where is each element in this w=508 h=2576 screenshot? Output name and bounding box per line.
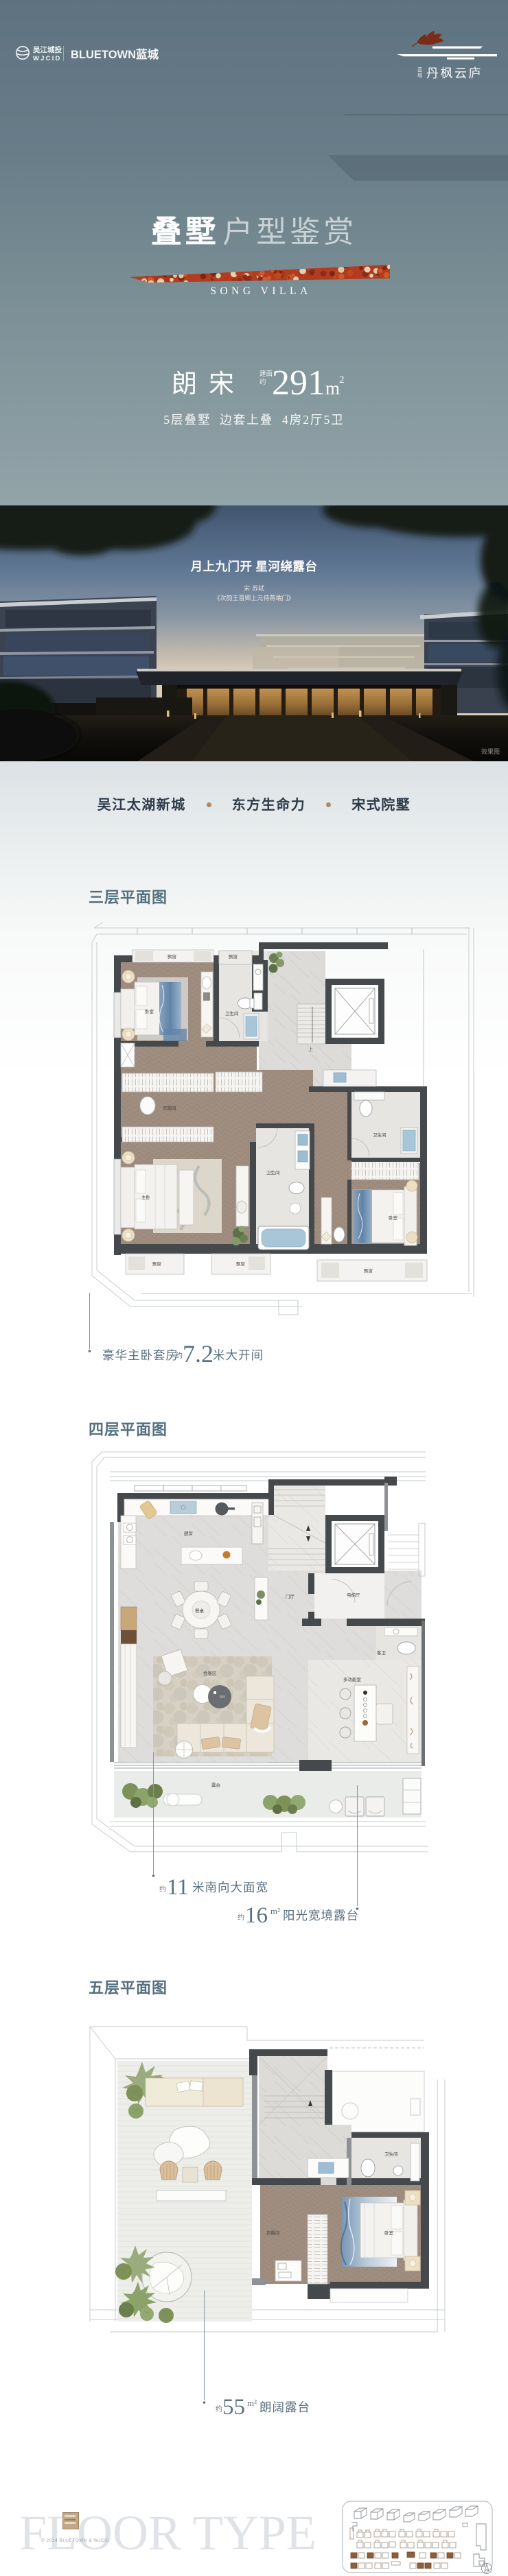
svg-text:约: 约 xyxy=(176,1351,183,1360)
svg-text:飘窗: 飘窗 xyxy=(152,1261,161,1267)
svg-text:多功能室: 多功能室 xyxy=(343,1676,362,1682)
svg-text:WJCID: WJCID xyxy=(33,55,62,62)
svg-text:豪华主卧套房: 豪华主卧套房 xyxy=(102,1348,178,1362)
svg-text:飘窗: 飘窗 xyxy=(236,1261,245,1267)
svg-text:291: 291 xyxy=(272,363,325,403)
svg-text:BLUETOWN蓝城: BLUETOWN蓝城 xyxy=(71,48,159,61)
svg-text:飘窗: 飘窗 xyxy=(168,953,176,959)
svg-text:米大开间: 米大开间 xyxy=(213,1348,264,1362)
svg-text:厨房: 厨房 xyxy=(184,1530,193,1536)
svg-text:效果图: 效果图 xyxy=(481,748,500,755)
svg-text:主卧: 主卧 xyxy=(141,1194,151,1200)
svg-text:门厅: 门厅 xyxy=(286,1593,295,1599)
svg-text:会客区: 会客区 xyxy=(203,1670,217,1676)
svg-text:m²: m² xyxy=(270,1906,280,1916)
svg-text:约: 约 xyxy=(259,378,266,386)
svg-text:卫生间: 卫生间 xyxy=(266,1169,280,1176)
svg-text:建面: 建面 xyxy=(259,370,273,378)
svg-text:丹枫云庐: 丹枫云庐 xyxy=(426,67,483,80)
svg-text:m²: m² xyxy=(247,2398,257,2408)
svg-text:2: 2 xyxy=(339,374,345,385)
svg-text:朗宋: 朗宋 xyxy=(172,370,246,398)
svg-text:11: 11 xyxy=(167,1875,189,1900)
svg-text:客卫: 客卫 xyxy=(377,1649,386,1656)
svg-text:宋·苏轼: 宋·苏轼 xyxy=(244,584,264,592)
svg-text:衣帽间: 衣帽间 xyxy=(266,2230,280,2236)
svg-text:卧室: 卧室 xyxy=(145,1008,154,1014)
svg-text:m: m xyxy=(325,378,340,398)
svg-text:卫生间: 卫生间 xyxy=(373,1132,386,1138)
svg-text:约: 约 xyxy=(238,1913,244,1922)
svg-text:《次韵王晋卿上元侍燕端门》: 《次韵王晋卿上元侍燕端门》 xyxy=(213,594,294,601)
svg-text:蓝: 蓝 xyxy=(417,67,422,73)
svg-text:约: 约 xyxy=(216,2405,222,2413)
svg-text:N: N xyxy=(486,2562,488,2565)
svg-text:吴江城投: 吴江城投 xyxy=(33,45,62,54)
svg-text:卧室: 卧室 xyxy=(384,2230,394,2236)
svg-text:阳光宽境露台: 阳光宽境露台 xyxy=(283,1909,359,1922)
svg-text:7.2: 7.2 xyxy=(183,1340,213,1368)
svg-text:卫生间: 卫生间 xyxy=(225,1010,239,1016)
svg-text:卧室: 卧室 xyxy=(389,1215,398,1221)
svg-text:16: 16 xyxy=(245,1903,268,1928)
svg-text:约: 约 xyxy=(159,1885,166,1894)
svg-text:月上九门开 星河绕露台: 月上九门开 星河绕露台 xyxy=(190,560,318,573)
svg-text:衣帽间: 衣帽间 xyxy=(163,1105,176,1111)
svg-text:飘窗: 飘窗 xyxy=(364,1267,373,1274)
svg-text:朗阔露台: 朗阔露台 xyxy=(259,2400,310,2414)
svg-text:飘窗: 飘窗 xyxy=(229,953,238,959)
svg-text:米南向大面宽: 米南向大面宽 xyxy=(192,1881,268,1894)
svg-text:上: 上 xyxy=(308,1046,313,1052)
svg-text:餐桌: 餐桌 xyxy=(195,1608,205,1614)
svg-text:城: 城 xyxy=(417,73,422,78)
svg-text:电梯厅: 电梯厅 xyxy=(347,1592,360,1598)
svg-text:SONG VILLA: SONG VILLA xyxy=(210,285,311,297)
svg-text:55: 55 xyxy=(222,2395,245,2420)
svg-text:卫生间: 卫生间 xyxy=(384,2151,398,2157)
